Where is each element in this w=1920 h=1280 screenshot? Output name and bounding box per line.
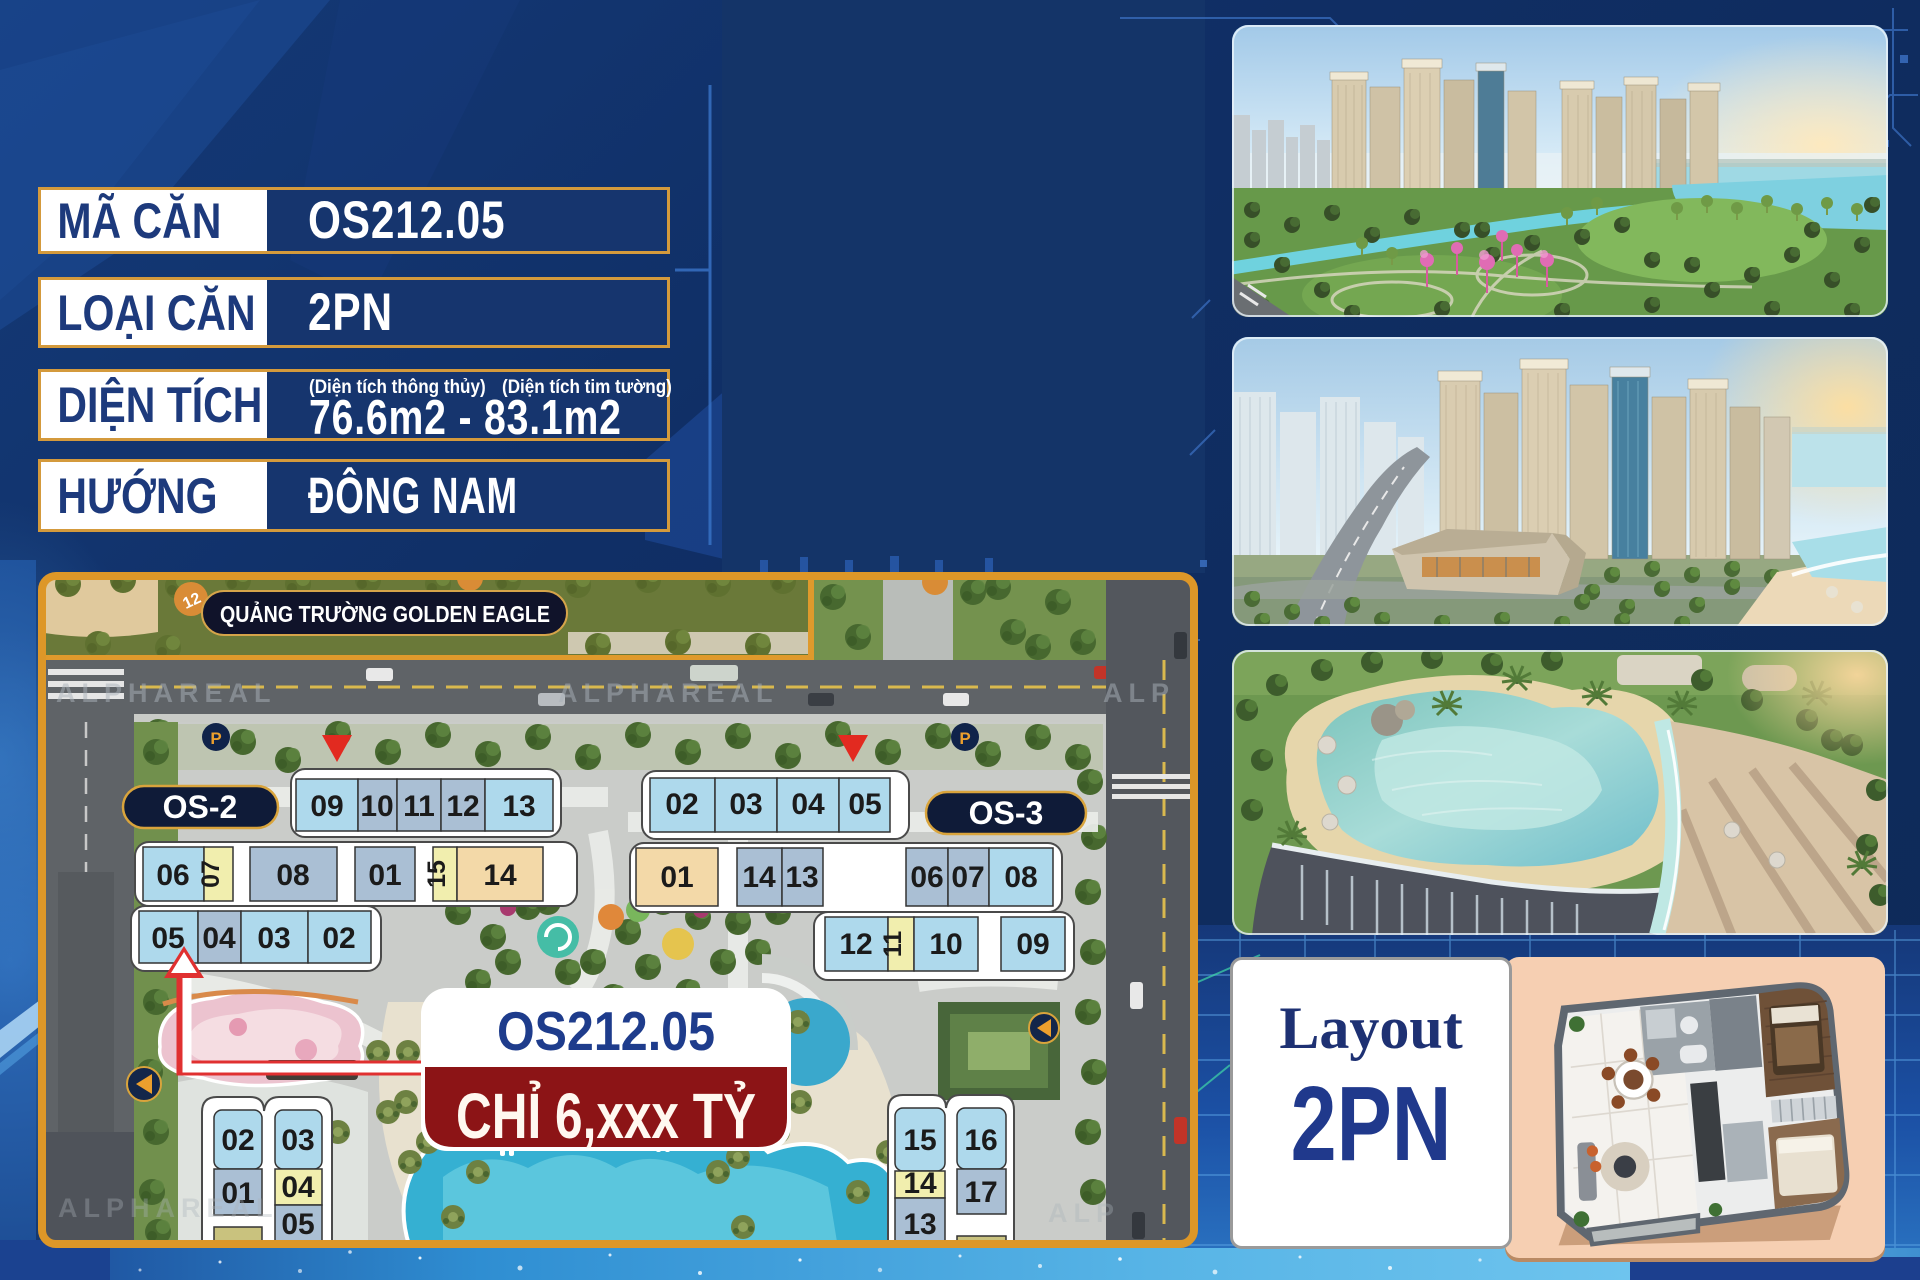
svg-text:13: 13 [502, 790, 535, 823]
svg-text:04: 04 [281, 1171, 315, 1204]
svg-text:06: 06 [156, 859, 189, 892]
svg-text:OS-2: OS-2 [163, 789, 238, 825]
svg-text:17: 17 [964, 1176, 997, 1209]
svg-text:04: 04 [202, 922, 236, 955]
svg-text:10: 10 [360, 790, 393, 823]
svg-text:03: 03 [729, 788, 762, 821]
svg-text:02: 02 [221, 1124, 254, 1157]
svg-text:05: 05 [848, 788, 881, 821]
svg-text:11: 11 [879, 931, 907, 958]
svg-text:05: 05 [281, 1208, 314, 1241]
svg-text:10: 10 [929, 928, 962, 961]
svg-text:QUẢNG TRƯỜNG GOLDEN EAGLE: QUẢNG TRƯỜNG GOLDEN EAGLE [220, 599, 550, 627]
svg-text:ALPHAREAL: ALPHAREAL [58, 1193, 279, 1223]
svg-text:ALPHAREAL: ALPHAREAL [558, 678, 779, 708]
svg-text:14: 14 [483, 859, 517, 892]
svg-text:01: 01 [660, 861, 693, 894]
svg-text:ALP: ALP [1048, 1198, 1120, 1228]
svg-text:06: 06 [910, 861, 943, 894]
svg-text:01: 01 [368, 859, 401, 892]
svg-text:OS212.05: OS212.05 [497, 1000, 715, 1062]
svg-text:02: 02 [665, 788, 698, 821]
svg-text:09: 09 [310, 790, 343, 823]
svg-text:14: 14 [742, 861, 776, 894]
svg-text:03: 03 [257, 922, 290, 955]
svg-text:14: 14 [903, 1167, 937, 1200]
svg-text:02: 02 [322, 922, 355, 955]
svg-text:07: 07 [197, 860, 225, 888]
svg-text:CHỈ 6,xxx TỶ: CHỈ 6,xxx TỶ [456, 1079, 756, 1152]
svg-text:ALPHAREAL: ALPHAREAL [56, 678, 277, 708]
svg-text:OS-3: OS-3 [969, 795, 1044, 831]
svg-text:08: 08 [1004, 861, 1037, 894]
svg-text:12: 12 [446, 790, 479, 823]
svg-text:09: 09 [1016, 928, 1049, 961]
svg-text:03: 03 [281, 1124, 314, 1157]
svg-text:05: 05 [151, 922, 184, 955]
svg-text:11: 11 [403, 790, 435, 823]
svg-text:ALP: ALP [1103, 678, 1175, 708]
svg-text:15: 15 [903, 1124, 936, 1157]
svg-text:13: 13 [785, 861, 818, 894]
svg-text:08: 08 [276, 859, 309, 892]
svg-text:13: 13 [903, 1208, 936, 1241]
svg-text:P: P [959, 729, 970, 748]
svg-text:16: 16 [964, 1124, 997, 1157]
svg-text:12: 12 [839, 928, 872, 961]
svg-text:07: 07 [951, 861, 984, 894]
svg-text:P: P [210, 729, 221, 748]
svg-text:04: 04 [791, 788, 825, 821]
svg-text:15: 15 [423, 860, 451, 888]
